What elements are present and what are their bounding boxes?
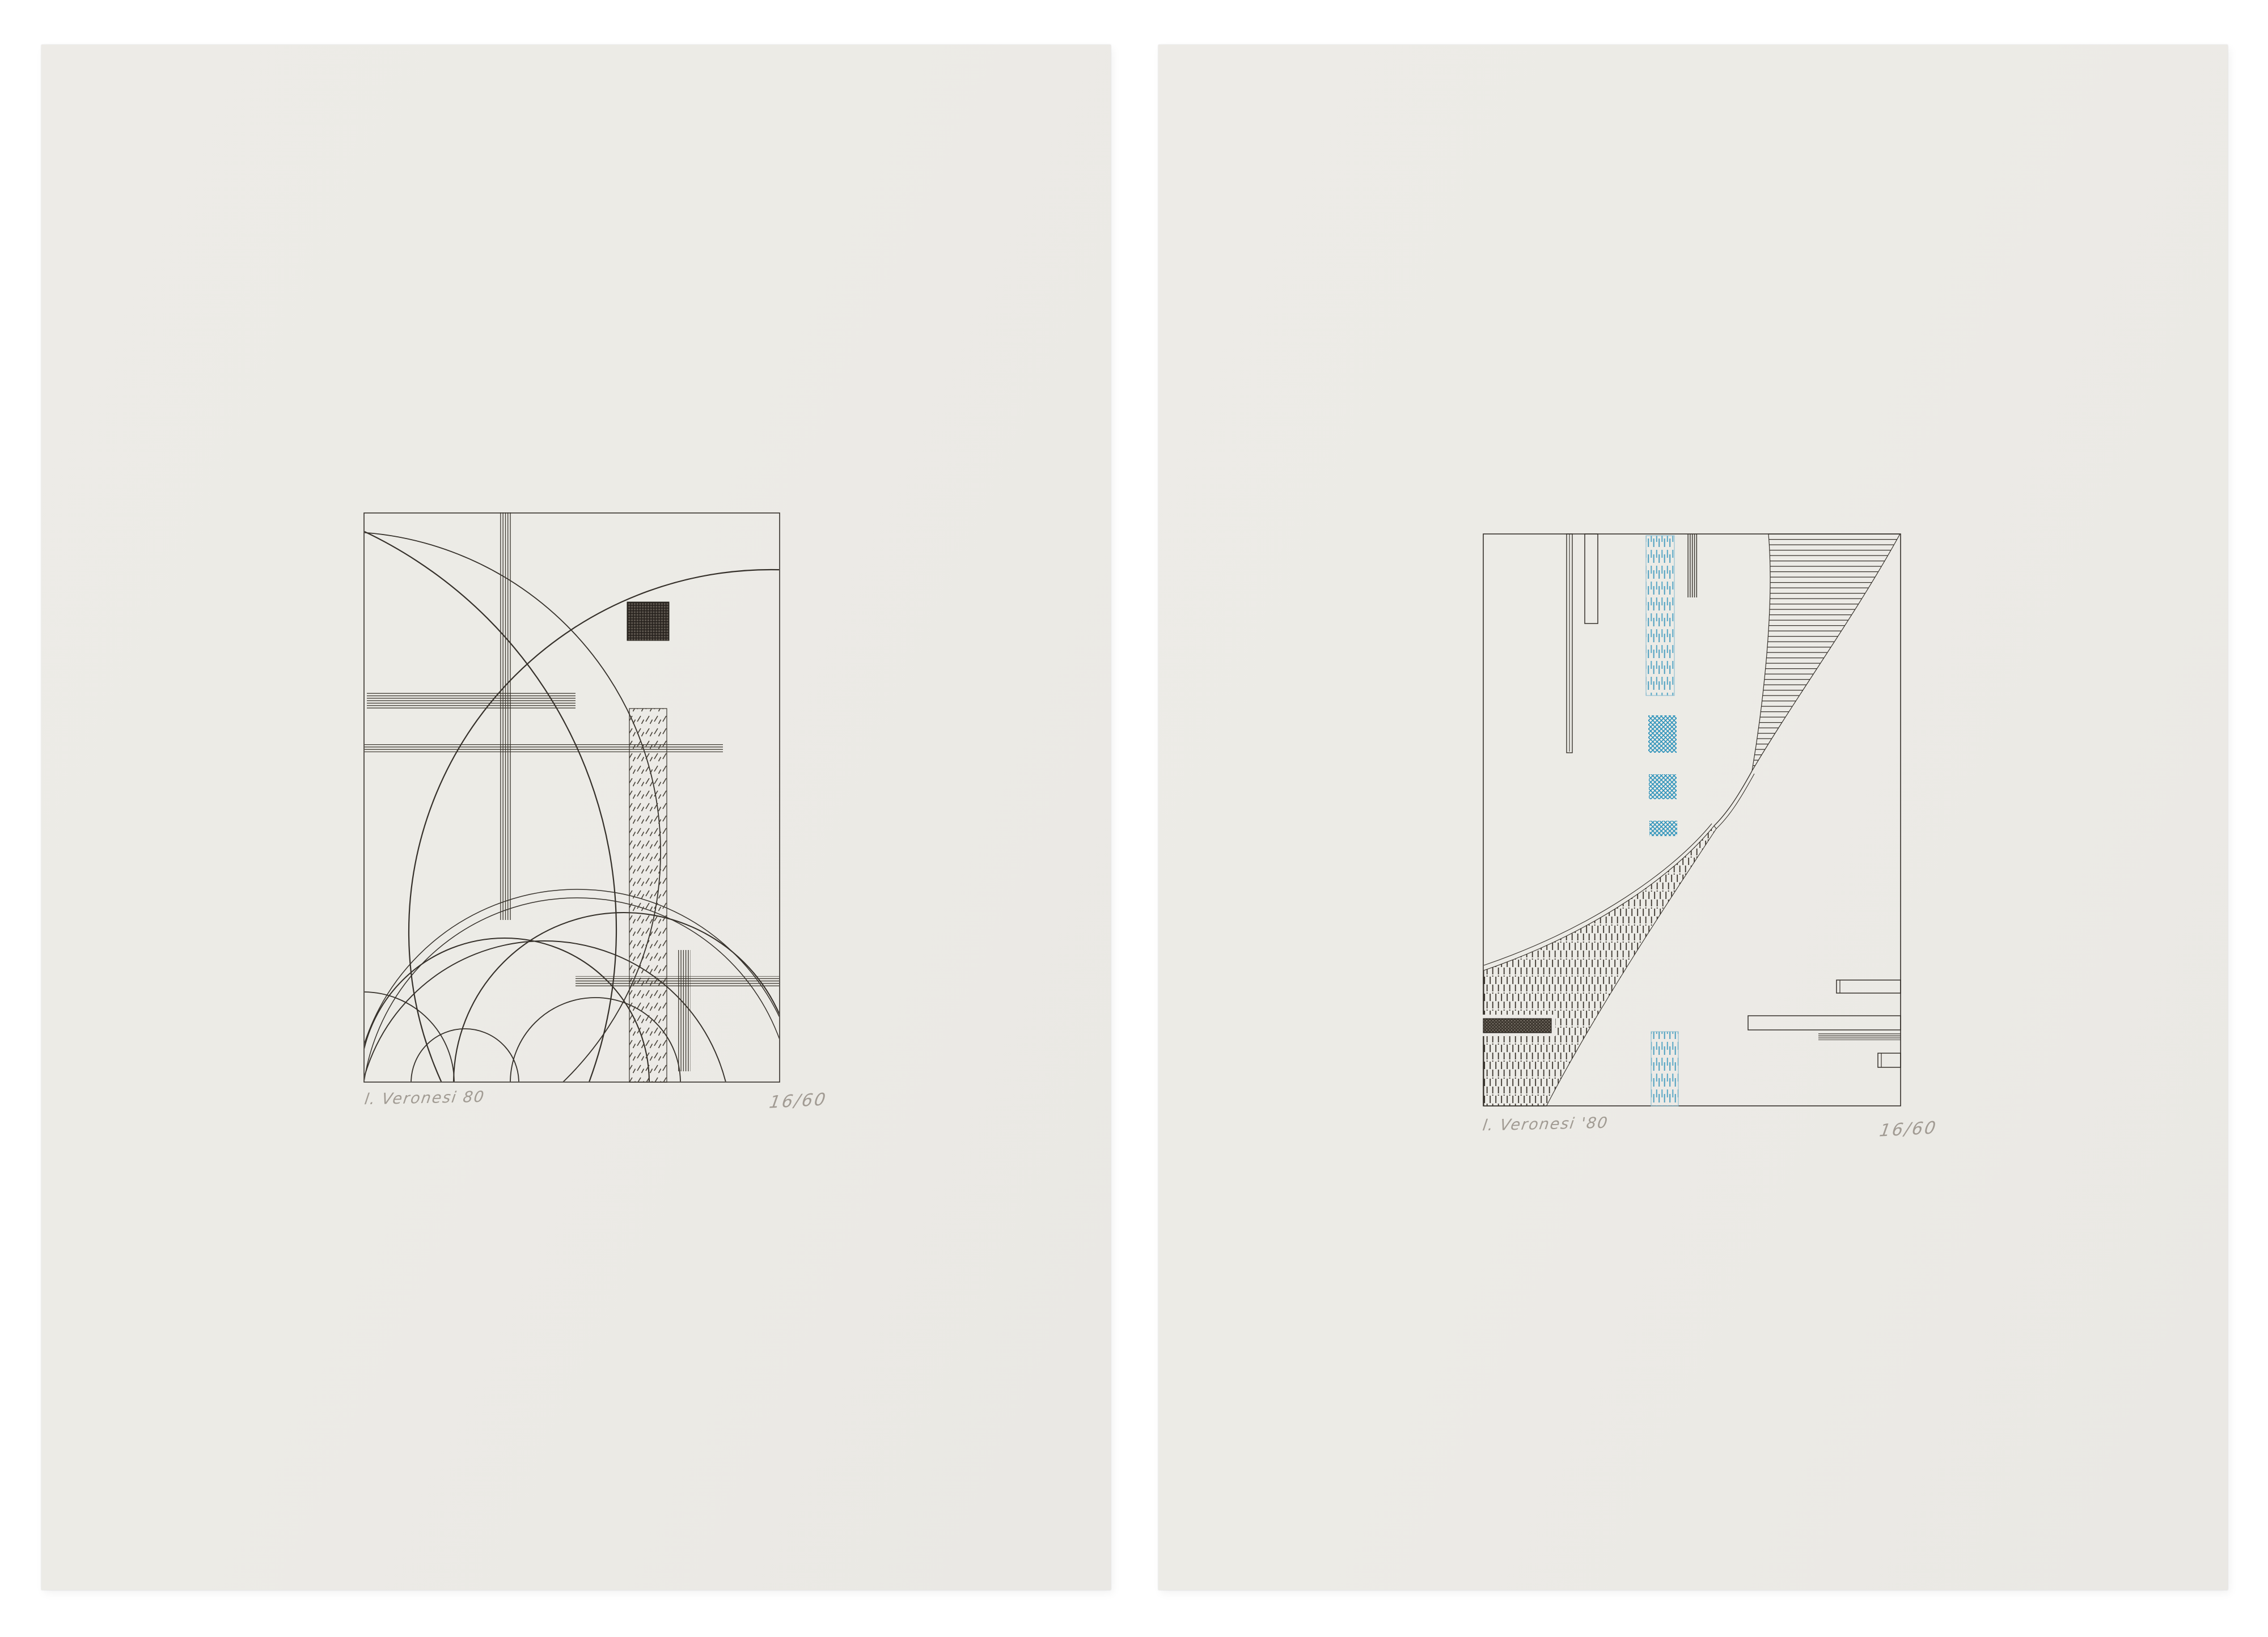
left-plate-frame — [364, 513, 780, 1082]
right-edition-number: 16/60 — [1878, 1118, 1939, 1141]
left-arc-group — [363, 512, 780, 1083]
right-hollow-hbar-2 — [1748, 1016, 1901, 1030]
right-etching — [1483, 533, 1901, 1106]
blue-crosshatch-square-1 — [1648, 715, 1677, 753]
right-bottom-bars — [1748, 980, 1901, 1067]
blue-crosshatch-square-2 — [1649, 774, 1677, 799]
left-edition-number: 16/60 — [768, 1089, 828, 1113]
left-signature: l. Veronesi 80 — [363, 1088, 486, 1109]
right-blue-squares — [1648, 715, 1677, 836]
right-blue-bottom-rect — [1651, 1032, 1678, 1106]
left-tall-striped-column — [500, 512, 512, 920]
left-hbar-upper — [367, 693, 576, 709]
right-top-bars — [1567, 534, 1698, 753]
left-dark-grid-square — [627, 602, 669, 641]
right-signature: l. Veronesi '80 — [1482, 1114, 1610, 1135]
left-hatched-column — [629, 709, 667, 1083]
right-hollow-bar — [1585, 534, 1598, 624]
left-sheet: l. Veronesi 80 16/60 — [41, 45, 1111, 1590]
right-striped-hbar — [1818, 1033, 1901, 1040]
right-sheet: l. Veronesi '80 16/60 — [1158, 45, 2228, 1590]
right-hollow-hbar-1 — [1837, 980, 1901, 993]
right-dark-striped-bar — [1687, 534, 1698, 597]
left-etching — [363, 512, 780, 1083]
blue-crosshatch-square-3 — [1649, 821, 1677, 836]
photo-of-two-prints: l. Veronesi 80 16/60 — [0, 0, 2268, 1637]
left-small-striped-column — [678, 950, 691, 1071]
left-hbar-bottom — [576, 976, 779, 987]
right-blue-tall-rect — [1646, 536, 1674, 695]
left-hbar-middle — [365, 744, 723, 752]
right-upper-wedge — [1714, 534, 1900, 829]
left-bars-group — [365, 512, 779, 1083]
right-dark-woven-bar — [1483, 1019, 1551, 1033]
right-lower-band — [1483, 824, 1716, 1106]
